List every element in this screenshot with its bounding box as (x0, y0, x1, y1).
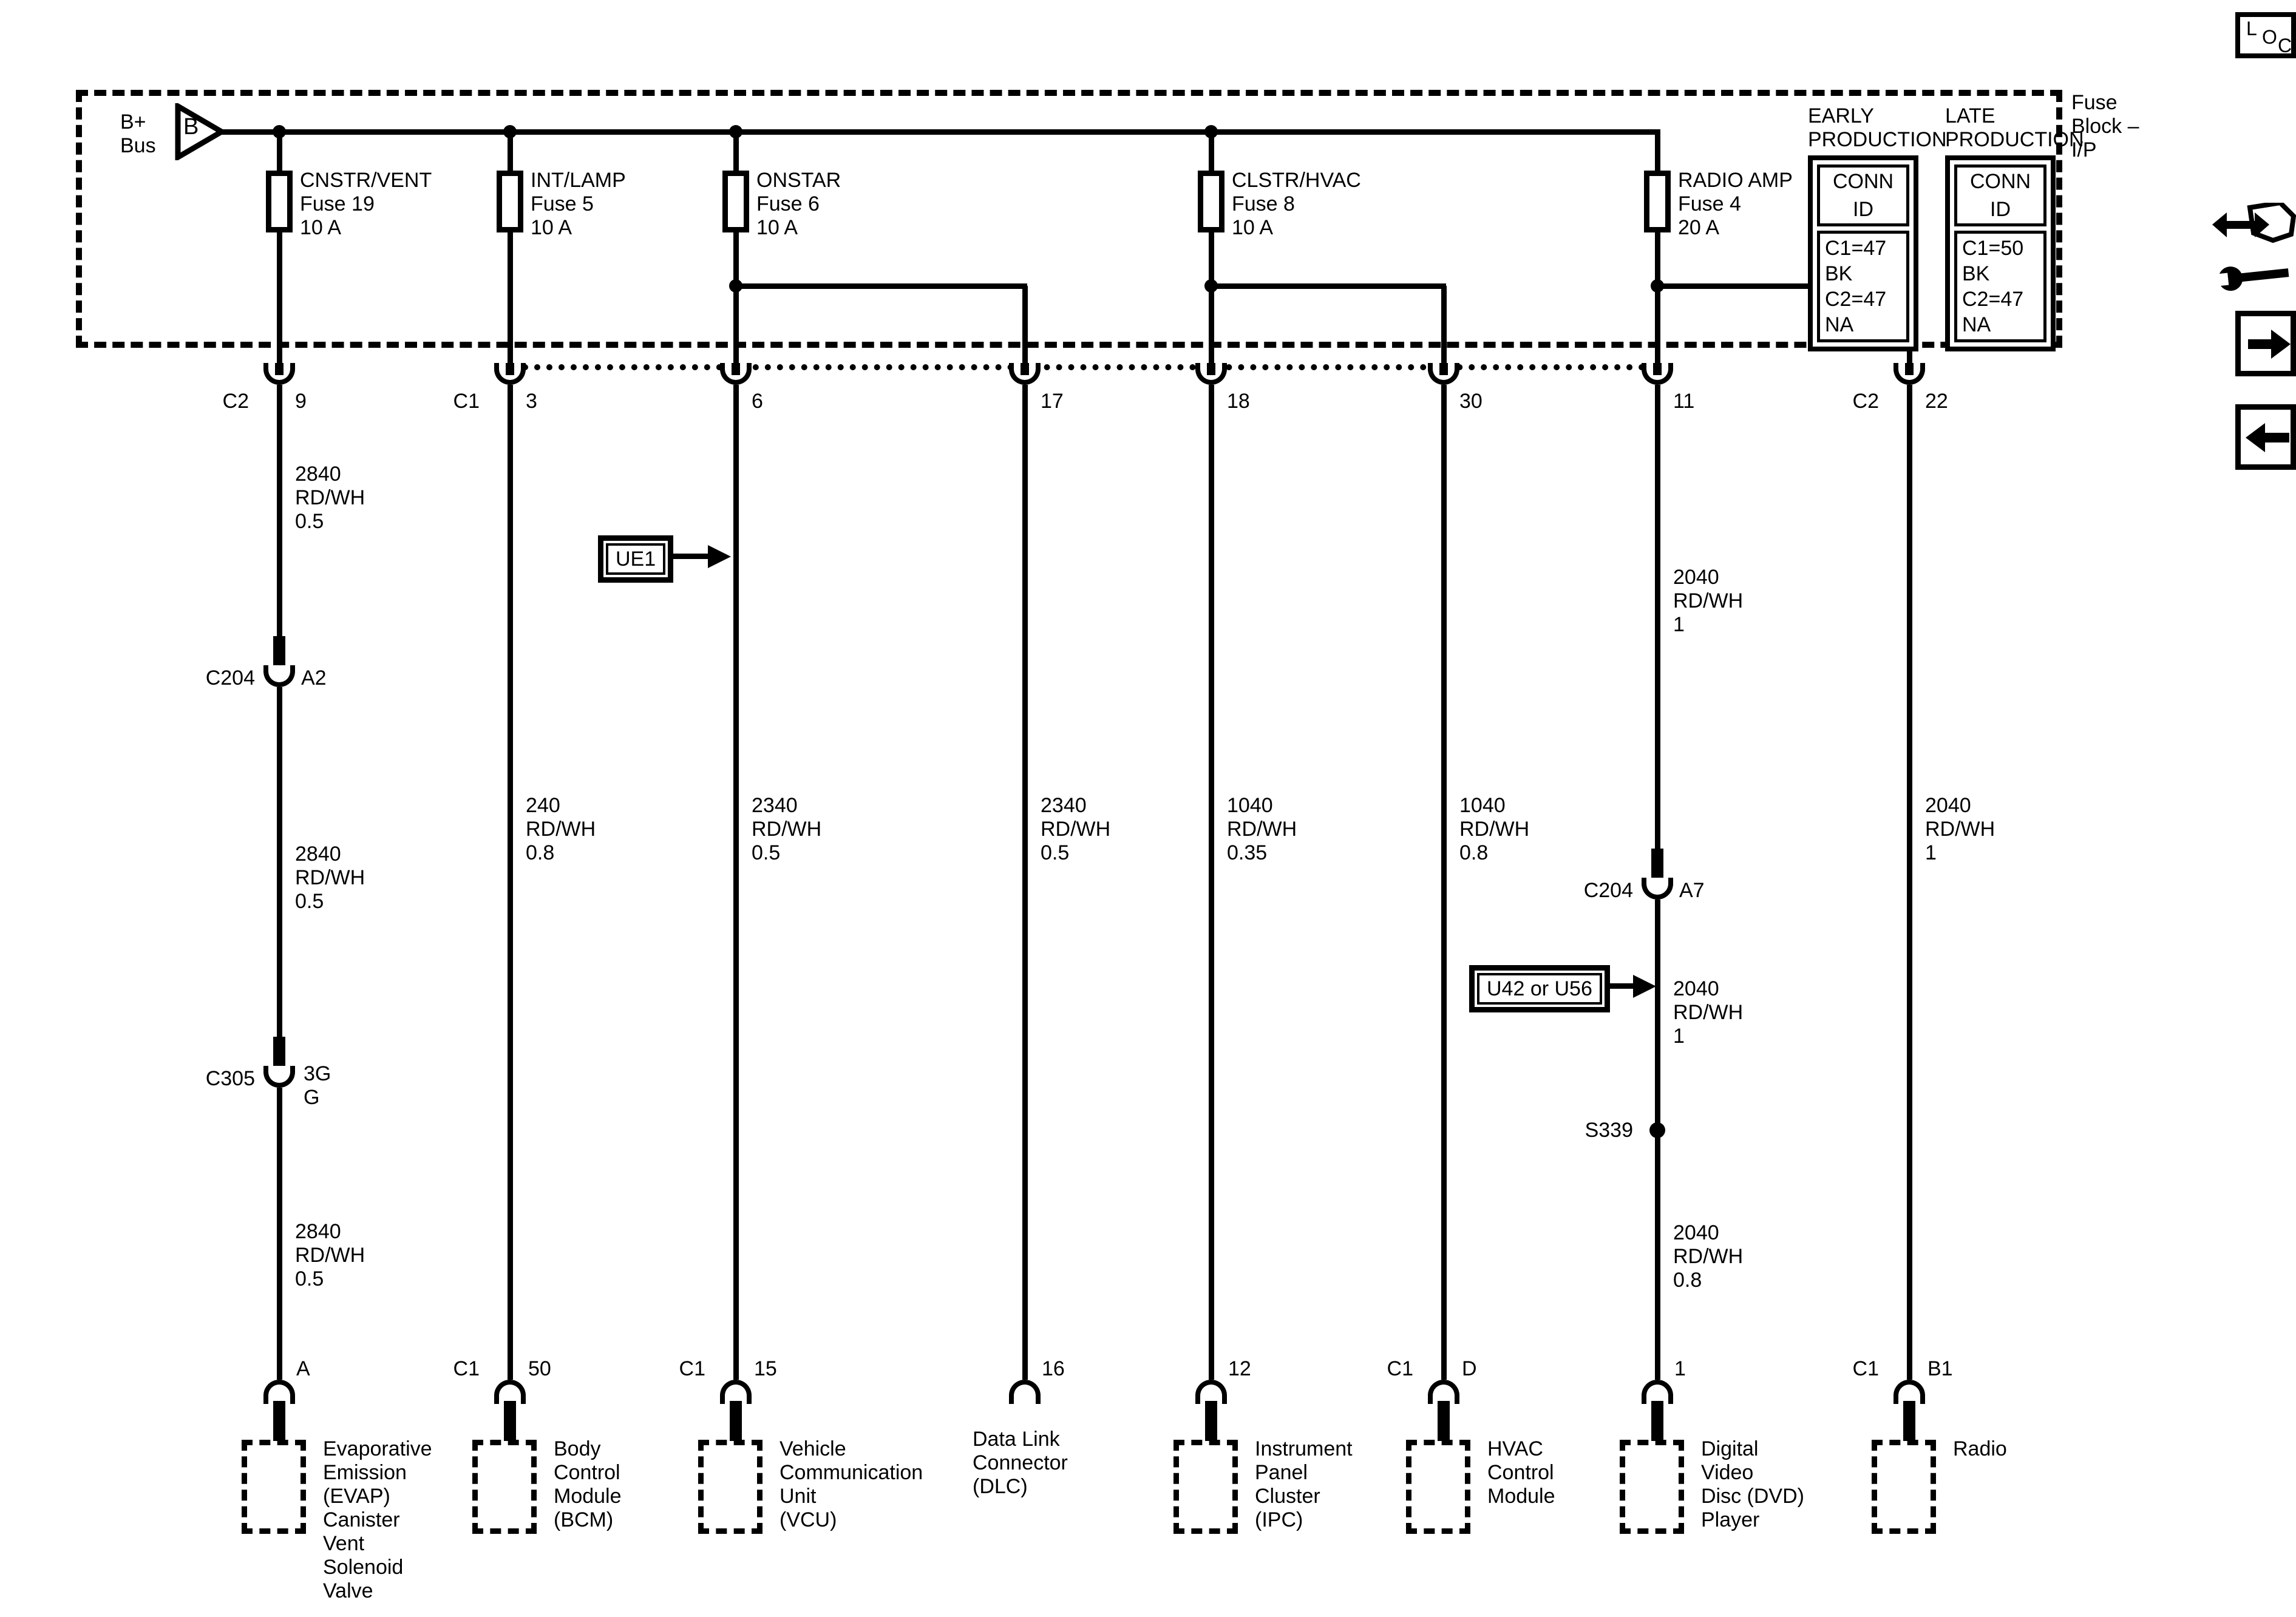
callout-arrow (669, 554, 709, 559)
module-label: Digital Video Disc (DVD) Player (1701, 1437, 1804, 1532)
pin-number: 15 (754, 1357, 777, 1381)
wiring-diagram-page: B+ Bus B CNSTR/VENT Fuse 19 10 A INT/LAM… (0, 0, 2296, 1617)
module-box-ipc (1173, 1440, 1238, 1534)
callout-ue1-label: UE1 (606, 543, 665, 575)
connector-stub (1207, 363, 1215, 375)
splice-dot (1649, 1122, 1665, 1138)
pin-number: D (1462, 1357, 1477, 1381)
module-label: Evaporative Emission (EVAP) Canister Ven… (323, 1437, 432, 1603)
bus-wire (220, 129, 1660, 135)
connector-stub (730, 1401, 742, 1441)
wire (1022, 286, 1028, 363)
module-label: HVAC Control Module (1487, 1437, 1555, 1508)
fuse-symbol (1644, 171, 1671, 232)
wire (1209, 385, 1214, 1380)
wire (733, 132, 739, 363)
connector-stub (1651, 1401, 1663, 1441)
connector-stub (1021, 363, 1029, 375)
connector-row-dotted-line (510, 364, 1657, 370)
conn-id-header: CONN ID (1817, 164, 1909, 226)
connector-symbol (1894, 1380, 1925, 1404)
branch-wire (736, 283, 1027, 289)
callout-arrowhead-icon (1633, 975, 1656, 998)
fuse-label: INT/LAMP Fuse 5 10 A (531, 169, 626, 240)
module-label: Instrument Panel Cluster (IPC) (1255, 1437, 1353, 1532)
pin-number: 17 (1041, 390, 1064, 413)
module-label: Vehicle Communication Unit (VCU) (779, 1437, 923, 1532)
wire (1441, 286, 1447, 363)
connector-male-stub (273, 1037, 285, 1066)
connector-symbol (263, 1380, 295, 1404)
connector-male-stub (273, 636, 285, 665)
pin-number: A2 (301, 666, 327, 690)
connector-symbol (263, 1066, 295, 1088)
module-box-evap-valve (242, 1440, 306, 1534)
pin-number: 9 (295, 390, 307, 413)
bus-triangle-letter: B (183, 115, 199, 139)
pin-number: 1 (1674, 1357, 1686, 1381)
connector-stub (1438, 1401, 1450, 1441)
connector-id: C305 (127, 1067, 255, 1091)
wire-label: 2040 RD/WH 1 (1673, 566, 1743, 637)
conn-id-header: CONN ID (1954, 164, 2046, 226)
right-arrow-icon (2248, 339, 2272, 349)
callout-u42-u56: U42 or U56 (1469, 965, 1610, 1012)
wire (1907, 385, 1912, 1380)
pin-number: 6 (752, 390, 763, 413)
module-label: Radio (1953, 1437, 2007, 1461)
connector-symbol (1642, 878, 1673, 900)
splice-id: S339 (1506, 1119, 1633, 1142)
connector-stub (1205, 1401, 1217, 1441)
connector-stub (275, 363, 284, 375)
module-label: Body Control Module (BCM) (554, 1437, 622, 1532)
fuse-symbol (722, 171, 749, 232)
fuse-label: CNSTR/VENT Fuse 19 10 A (300, 169, 432, 240)
wire-label: 2040 RD/WH 1 (1925, 794, 1995, 865)
pin-number: A (296, 1357, 310, 1381)
next-page-button[interactable] (2235, 311, 2296, 376)
module-box-dvd (1620, 1440, 1684, 1534)
wire (1441, 385, 1447, 1380)
connector-symbol (720, 1380, 752, 1404)
connector-stub (273, 1401, 285, 1441)
loc-letter-o: O (2262, 25, 2277, 49)
diagnostic-hand-wrench-icon[interactable] (2212, 203, 2296, 295)
wire (1655, 900, 1660, 1380)
conn-id-values: C1=50 BK C2=47 NA (1954, 231, 2046, 342)
wire (733, 385, 739, 1380)
fuse-label: RADIO AMP Fuse 4 20 A (1678, 169, 1793, 240)
connector-symbol (1195, 1380, 1227, 1404)
connector-stub (504, 1401, 516, 1441)
early-conn-id-table: CONN ID C1=47 BK C2=47 NA (1808, 155, 1918, 351)
wire-label: 2340 RD/WH 0.5 (752, 794, 821, 865)
wire-label: 2040 RD/WH 0.8 (1673, 1221, 1743, 1292)
wire-label: 2840 RD/WH 0.5 (295, 463, 365, 534)
wire-label: 2340 RD/WH 0.5 (1041, 794, 1110, 865)
wire-label: 240 RD/WH 0.8 (526, 794, 596, 865)
connector-stub (1653, 363, 1662, 375)
wire (508, 132, 513, 363)
module-box-radio (1872, 1440, 1936, 1534)
branch-wire (1211, 283, 1446, 289)
module-label: Data Link Connector (DLC) (973, 1428, 1068, 1499)
pin-number: 11 (1673, 390, 1694, 413)
left-arrow-head-icon (2246, 423, 2265, 452)
bus-label: B+ Bus (120, 110, 156, 158)
wire (1022, 385, 1028, 1380)
connector-id: C1 (419, 1357, 480, 1381)
wire (277, 1088, 282, 1380)
pin-number: 50 (528, 1357, 551, 1381)
callout-ue1: UE1 (598, 535, 673, 583)
connector-stub (1439, 363, 1448, 375)
wire (508, 385, 513, 1380)
connector-symbol (494, 1380, 526, 1404)
pin-number: 16 (1042, 1357, 1065, 1381)
connector-id: C2 (1818, 390, 1879, 413)
fuse-label: ONSTAR Fuse 6 10 A (756, 169, 841, 240)
callout-arrowhead-icon (708, 545, 731, 568)
wire (1209, 132, 1214, 363)
fuse-symbol (266, 171, 293, 232)
connector-stub (732, 363, 740, 375)
connector-symbol (1428, 1380, 1459, 1404)
wire (277, 687, 282, 1037)
wire-label: 1040 RD/WH 0.8 (1459, 794, 1529, 865)
pin-number: 12 (1228, 1357, 1251, 1381)
connector-id: C204 (1506, 879, 1633, 903)
connector-id: C1 (645, 1357, 705, 1381)
connector-id: C204 (127, 666, 255, 690)
connector-stub (506, 363, 514, 375)
bus-triangle-icon (175, 103, 226, 160)
module-box-vcu (698, 1440, 763, 1534)
pin-number: 3G G (304, 1062, 331, 1110)
connector-symbol (1009, 1380, 1041, 1404)
pin-number: B1 (1927, 1357, 1953, 1381)
previous-page-button[interactable] (2235, 404, 2296, 470)
wire (277, 385, 282, 636)
right-arrow-head-icon (2271, 330, 2291, 359)
wire-label: 2040 RD/WH 1 (1673, 977, 1743, 1048)
wire (1655, 132, 1660, 363)
connector-symbol (263, 665, 295, 687)
left-arrow-icon (2265, 433, 2289, 442)
late-production-title: LATE PRODUCTION (1945, 104, 2084, 152)
loc-button[interactable]: L O C (2235, 12, 2296, 58)
late-conn-id-table: CONN ID C1=50 BK C2=47 NA (1945, 155, 2056, 351)
wire (1655, 385, 1660, 849)
fuse-symbol (497, 171, 523, 232)
pin-number: 18 (1227, 390, 1250, 413)
connector-id: C1 (1818, 1357, 1879, 1381)
fuse-symbol (1198, 171, 1224, 232)
pin-number: 3 (526, 390, 537, 413)
callout-arrow (1610, 983, 1635, 989)
pin-number: 30 (1459, 390, 1483, 413)
connector-stub (1905, 363, 1914, 375)
pin-number: A7 (1679, 879, 1705, 903)
early-production-title: EARLY PRODUCTION (1808, 104, 1947, 152)
connector-id: C1 (419, 390, 480, 413)
wire-label: 2840 RD/WH 0.5 (295, 842, 365, 914)
fuse-block-label: Fuse Block – I/P (2071, 91, 2139, 162)
connector-stub (1903, 1401, 1915, 1441)
callout-u42-u56-label: U42 or U56 (1477, 973, 1602, 1005)
module-box-hvac (1406, 1440, 1470, 1534)
fuse-label: CLSTR/HVAC Fuse 8 10 A (1232, 169, 1361, 240)
connector-id: C2 (188, 390, 249, 413)
connector-male-stub (1651, 849, 1663, 878)
module-box-bcm (472, 1440, 537, 1534)
wire-label: 2840 RD/WH 0.5 (295, 1220, 365, 1291)
connector-id: C1 (1353, 1357, 1413, 1381)
connector-symbol (1642, 1380, 1673, 1404)
wire (277, 132, 282, 363)
loc-letter-c: C (2278, 34, 2292, 58)
loc-letter-l: L (2246, 17, 2257, 41)
wire-label: 1040 RD/WH 0.35 (1227, 794, 1297, 865)
pin-number: 22 (1925, 390, 1948, 413)
conn-id-values: C1=47 BK C2=47 NA (1817, 231, 1909, 342)
